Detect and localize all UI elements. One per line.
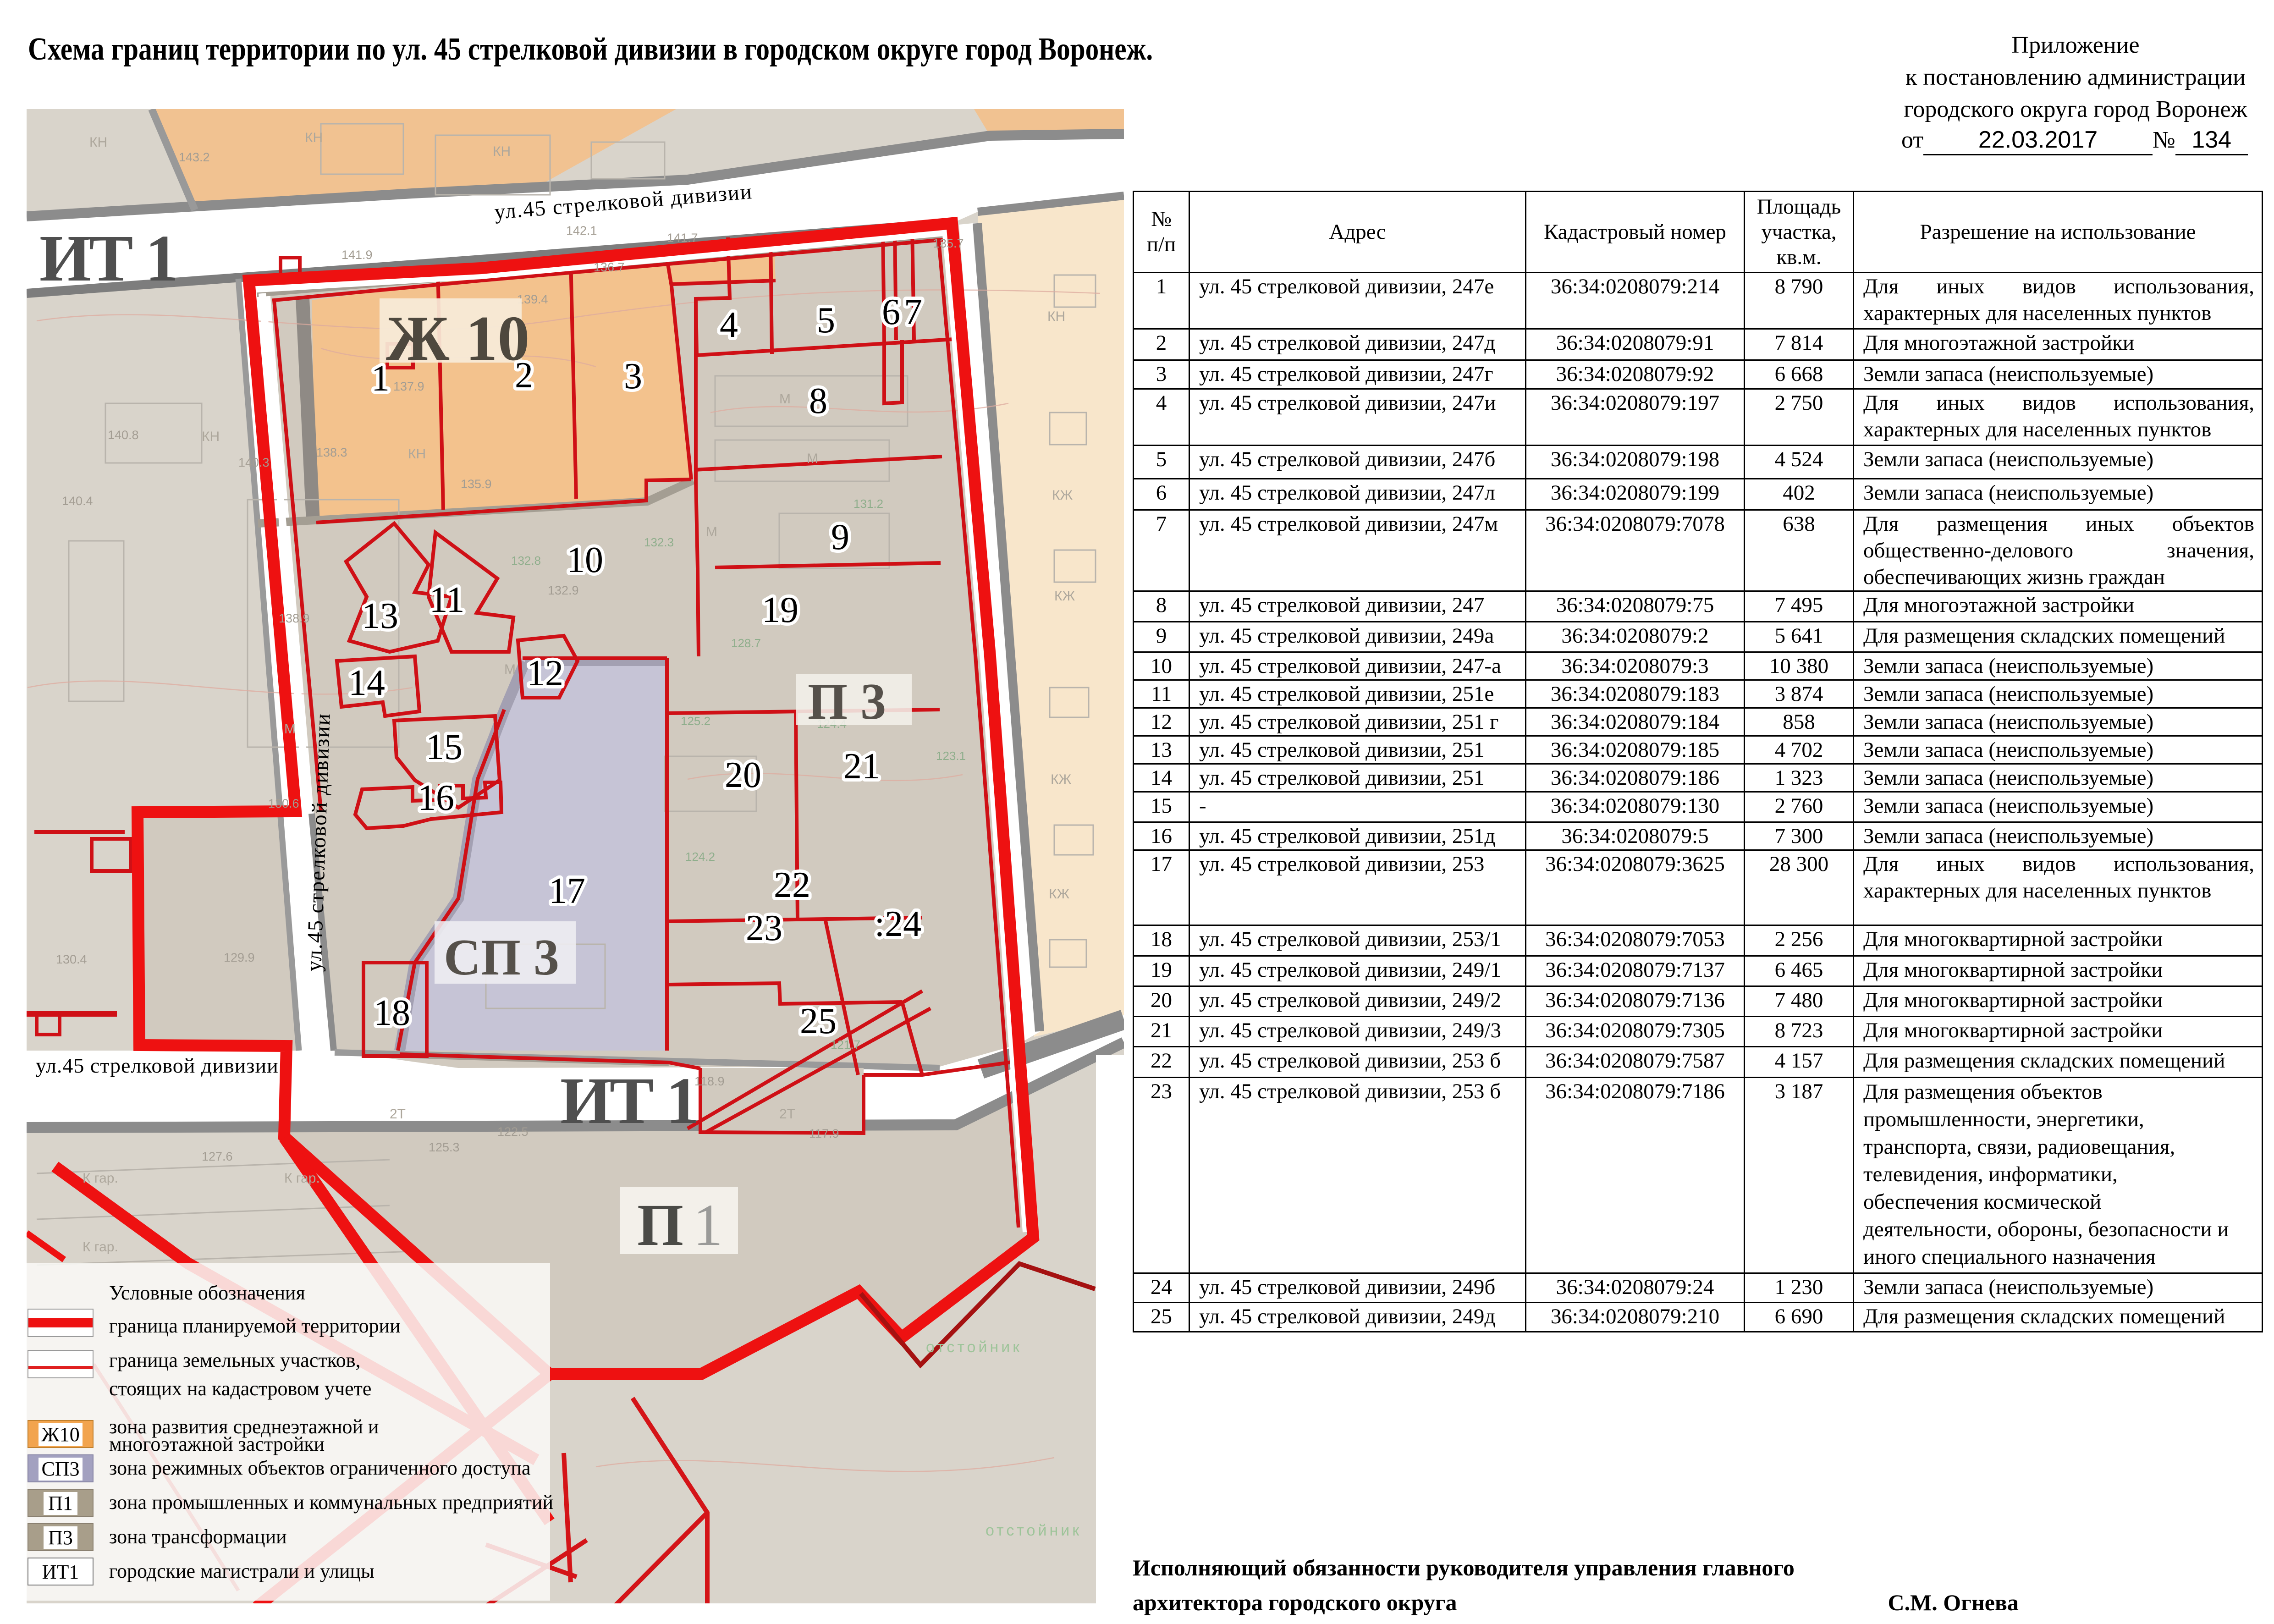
svg-text:5: 5	[817, 300, 835, 341]
svg-text:2Т: 2Т	[779, 1107, 795, 1122]
svg-text:124.2: 124.2	[685, 850, 715, 864]
svg-text:23: 23	[746, 908, 782, 948]
svg-text:25: 25	[800, 1001, 837, 1041]
svg-text:135.9: 135.9	[461, 477, 492, 491]
svg-text:КЖ: КЖ	[1052, 488, 1073, 503]
svg-text:19: 19	[762, 590, 798, 630]
svg-text:17: 17	[549, 871, 585, 911]
svg-text:140.8: 140.8	[108, 428, 139, 442]
svg-text:12: 12	[527, 653, 563, 694]
svg-text:СП 3: СП 3	[444, 929, 559, 986]
svg-text:20: 20	[725, 755, 761, 795]
svg-text:10: 10	[567, 540, 603, 580]
svg-text:135.7: 135.7	[933, 237, 964, 250]
svg-text:КН: КН	[408, 446, 426, 462]
svg-text:2Т: 2Т	[390, 1107, 406, 1122]
svg-text:КН: КН	[89, 135, 107, 150]
svg-text:136.7: 136.7	[594, 260, 625, 274]
svg-text:М: М	[807, 451, 818, 466]
svg-text:21: 21	[843, 746, 880, 787]
svg-text:КЖ: КЖ	[1054, 589, 1075, 604]
svg-text:141.7: 141.7	[667, 231, 698, 245]
svg-text:130.4: 130.4	[56, 952, 87, 966]
svg-text:140.4: 140.4	[62, 494, 93, 508]
svg-text:142.1: 142.1	[566, 224, 597, 237]
svg-text:ИТ 1: ИТ 1	[560, 1064, 697, 1138]
svg-text:117.9: 117.9	[809, 1127, 839, 1140]
svg-text:140.3: 140.3	[238, 456, 270, 469]
svg-text:125.2: 125.2	[681, 714, 710, 728]
svg-text:11: 11	[429, 580, 464, 620]
svg-text:отстойник: отстойник	[926, 1338, 1022, 1356]
svg-text:4: 4	[720, 305, 738, 345]
svg-text:13: 13	[362, 596, 398, 636]
svg-text:132.9: 132.9	[548, 584, 579, 597]
svg-text:131.2: 131.2	[853, 497, 883, 511]
svg-text:138.3: 138.3	[316, 446, 347, 459]
svg-text:КЖ: КЖ	[1049, 886, 1069, 902]
svg-text:22: 22	[774, 865, 810, 905]
svg-text:ИТ 1: ИТ 1	[39, 222, 176, 295]
svg-text:6: 6	[882, 292, 900, 332]
svg-text:Ж 10: Ж 10	[386, 303, 529, 374]
svg-text:141.9: 141.9	[341, 248, 373, 262]
svg-text:КН: КН	[1047, 309, 1065, 324]
svg-text:КН: КН	[202, 429, 220, 444]
svg-text:2: 2	[515, 355, 533, 396]
svg-text:К гар.: К гар.	[83, 1171, 118, 1186]
svg-text:КЖ: КЖ	[1051, 772, 1071, 787]
svg-text:8: 8	[809, 381, 827, 421]
svg-text:3: 3	[624, 356, 642, 396]
svg-text:7: 7	[904, 292, 922, 332]
svg-text:132.8: 132.8	[511, 554, 541, 567]
svg-text:9: 9	[831, 517, 849, 557]
svg-text:14: 14	[348, 663, 385, 703]
svg-text:123.1: 123.1	[936, 749, 966, 763]
svg-text:К гар.: К гар.	[284, 1171, 320, 1186]
svg-text:118.9: 118.9	[694, 1074, 725, 1088]
svg-text:КН: КН	[493, 144, 511, 159]
svg-text:18: 18	[374, 993, 410, 1033]
svg-text:П 3: П 3	[808, 673, 886, 730]
svg-text:129.9: 129.9	[224, 951, 255, 964]
svg-text:15: 15	[426, 727, 463, 767]
svg-text:К гар.: К гар.	[83, 1239, 118, 1255]
svg-text::24: :24	[875, 904, 921, 944]
svg-text:М: М	[504, 662, 516, 677]
svg-text:П: П	[637, 1192, 683, 1258]
svg-text:128.7: 128.7	[731, 636, 761, 650]
svg-text:122.5: 122.5	[497, 1125, 529, 1139]
svg-text:132.3: 132.3	[644, 535, 674, 549]
svg-text:отстойник: отстойник	[986, 1522, 1082, 1539]
svg-text:М: М	[284, 721, 296, 737]
svg-text:137.9: 137.9	[393, 380, 424, 393]
svg-text:М: М	[779, 391, 791, 407]
svg-text:КН: КН	[305, 130, 323, 145]
svg-text:16: 16	[418, 778, 454, 818]
svg-text:1: 1	[371, 358, 390, 399]
svg-text:М: М	[706, 524, 717, 539]
svg-text:143.2: 143.2	[179, 150, 210, 164]
svg-text:125.3: 125.3	[429, 1140, 460, 1154]
svg-text:130.6: 130.6	[268, 797, 299, 810]
svg-text:1: 1	[693, 1192, 723, 1258]
svg-text:138.9: 138.9	[279, 611, 310, 625]
svg-text:ул.45 стрелковой дивизии: ул.45 стрелковой дивизии	[36, 1054, 279, 1077]
svg-text:127.6: 127.6	[202, 1150, 233, 1163]
